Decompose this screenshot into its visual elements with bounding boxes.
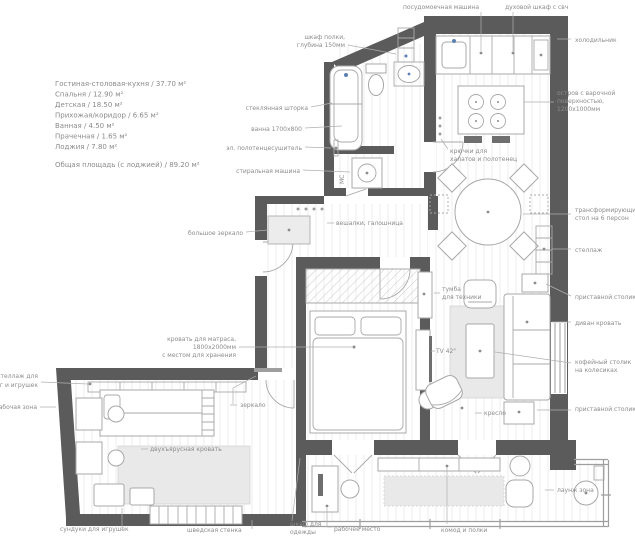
kids-chair xyxy=(108,450,124,466)
label-table: стол на 6 персон xyxy=(575,215,629,222)
label-work-area: рабочая зона xyxy=(0,404,37,411)
hanger-hook xyxy=(321,208,324,211)
label-book-rack: стеллаж для xyxy=(0,373,38,380)
legend: Гостиная-столовая-кухня / 37.70 м² Спаль… xyxy=(55,80,200,169)
bed-dot xyxy=(353,346,356,349)
label-oven: духовой шкаф с свч xyxy=(505,4,568,11)
lounge-pouf-round xyxy=(510,456,530,476)
bar-stool xyxy=(464,136,482,143)
kitchen-island xyxy=(458,86,524,134)
bath-faucet xyxy=(344,73,348,77)
label-dishwasher: посудомоечная машина xyxy=(403,4,479,11)
legend-item: Прачечная / 1.65 м² xyxy=(55,133,128,141)
double-bed xyxy=(310,311,406,433)
laundry-door xyxy=(346,189,366,196)
tv-screen xyxy=(429,336,432,382)
bar-stool xyxy=(492,136,510,143)
bedroom xyxy=(306,269,420,433)
label-wardrobe: одежды xyxy=(290,529,316,536)
label-washer: стиральная машина xyxy=(236,168,300,175)
sink-dot xyxy=(408,73,411,76)
towel-dryer-dot xyxy=(335,147,338,150)
label-workplace: рабочее место xyxy=(334,526,381,533)
label-coffee-table: кофейный столик xyxy=(575,359,632,366)
label-towel-dryer: эл. полотенцесушитель xyxy=(226,145,302,152)
kids-desk xyxy=(76,442,102,474)
legend-item: Спальня / 12.90 м² xyxy=(55,91,123,99)
label-bed: кровать для матраса, xyxy=(167,336,236,343)
label-bed: 1800х2000мм xyxy=(193,344,236,351)
burner-dot xyxy=(475,101,477,103)
sofa-dot xyxy=(526,321,529,324)
lounge-pouf-square xyxy=(506,480,533,507)
kitchen-sink xyxy=(442,42,466,68)
dishwasher-dot xyxy=(480,52,483,55)
label-armchair: кресло xyxy=(484,410,506,417)
kids-chair xyxy=(108,406,124,422)
monitor xyxy=(318,474,323,496)
label-tv-stand: тумба xyxy=(442,286,461,293)
label-coffee-table: на колесиках xyxy=(575,367,618,374)
robe-hook xyxy=(439,117,442,120)
book-rack-dot xyxy=(89,383,92,386)
label-bunk-bed: двухъярусная кровать xyxy=(150,446,222,453)
mirror-dot xyxy=(288,229,291,232)
oven-dot xyxy=(512,52,515,55)
dresser xyxy=(378,458,500,471)
floor-plan-page: Гостиная-столовая-кухня / 37.70 м² Спаль… xyxy=(0,0,635,539)
toy-chest xyxy=(94,484,124,506)
legend-item: Прихожая/коридор / 6.65 м² xyxy=(55,112,159,120)
sink-faucet xyxy=(452,39,456,43)
label-tv: TV 42" xyxy=(435,348,456,355)
loggia-desk xyxy=(312,466,338,512)
robe-hook xyxy=(439,125,442,128)
tv-stand xyxy=(416,330,430,390)
hanger-hook xyxy=(313,208,316,211)
label-big-mirror: большое зеркало xyxy=(188,230,243,237)
label-fridge: холодильник xyxy=(575,37,617,44)
side-table-top-dot xyxy=(534,282,537,285)
tv-unit-dot xyxy=(423,293,426,296)
armchair-dot xyxy=(461,407,464,410)
label-toy-chests: сундуки для игрушек xyxy=(60,526,129,533)
label-wardrobe: шкаф для xyxy=(290,521,322,528)
toilet-tank xyxy=(366,64,386,73)
label-glass-screen: стеклянная шторка xyxy=(246,105,309,112)
label-side-table-top: приставной столик xyxy=(575,294,635,301)
dresser-dot xyxy=(446,465,449,468)
label-dresser: комод и полки xyxy=(441,527,487,534)
burner-dot xyxy=(497,101,499,103)
tv-unit xyxy=(418,272,432,318)
floor-corridor xyxy=(267,257,296,368)
legend-total: Общая площадь (с лоджией) / 89.20 м² xyxy=(55,161,200,169)
label-bath: ванна 1700х800 xyxy=(251,126,302,133)
desk-chair-loggia xyxy=(341,480,359,498)
legend-item: Ванная / 4.50 м² xyxy=(55,122,115,130)
toilet-bowl xyxy=(369,75,384,96)
label-island: остров с варочной xyxy=(557,90,615,97)
label-side-table-bottom: приставной столик xyxy=(575,406,635,413)
corridor-mirror xyxy=(254,368,282,372)
coffee-table-dot xyxy=(479,350,482,353)
label-lounge: лаунж зона xyxy=(557,487,594,494)
label-table: трансформирующийся xyxy=(575,207,635,214)
table-dot xyxy=(487,211,490,214)
label-rack: стеллаж xyxy=(575,247,603,254)
label-hangers: вешалки, галошница xyxy=(336,220,403,227)
fridge-dot xyxy=(540,54,543,57)
label-mirror: зеркало xyxy=(240,402,266,409)
legend-item: Лоджия / 7.80 м² xyxy=(55,143,117,151)
label-book-rack: книг и игрушек xyxy=(0,382,38,389)
hanger-hook xyxy=(305,208,308,211)
shelf-dot xyxy=(405,55,408,58)
washer-dot xyxy=(366,172,369,175)
legend-item: Гостиная-столовая-кухня / 37.70 м² xyxy=(55,80,186,88)
label-island: 1200х1000мм xyxy=(557,106,600,113)
bedroom-wardrobe xyxy=(306,269,420,303)
label-wall-bars: шведская стенка xyxy=(187,527,242,534)
sofa-bed xyxy=(504,294,550,400)
burner-dot xyxy=(497,120,499,122)
label-hooks: халатов и полотенец xyxy=(450,156,517,163)
window-living xyxy=(551,322,567,394)
label-tv-stand: для техники xyxy=(442,294,482,301)
label-sofa: диван кровать xyxy=(575,320,622,327)
label-hooks: крючки для xyxy=(450,148,487,155)
desk-dot xyxy=(326,505,329,508)
legend-item: Детская / 18.50 м² xyxy=(55,101,123,109)
hanger-hook xyxy=(297,208,300,211)
label-bed: с местом для хранения xyxy=(162,352,236,359)
floor-plan-drawing: Гостиная-столовая-кухня / 37.70 м² Спаль… xyxy=(0,0,635,539)
kids-desk xyxy=(76,398,102,430)
toy-chest xyxy=(130,488,154,505)
side-table-bottom-dot xyxy=(518,411,521,414)
robe-hook xyxy=(439,133,442,136)
rug-loggia xyxy=(384,476,504,506)
label-island: поверхностью, xyxy=(557,98,604,105)
label-shelf-cabinet: шкаф полки, xyxy=(304,34,345,41)
label-washer-mark: МС xyxy=(339,175,346,184)
rack-dot xyxy=(543,248,546,251)
burner-dot xyxy=(475,120,477,122)
label-shelf-cabinet: глубина 150мм xyxy=(297,42,345,49)
